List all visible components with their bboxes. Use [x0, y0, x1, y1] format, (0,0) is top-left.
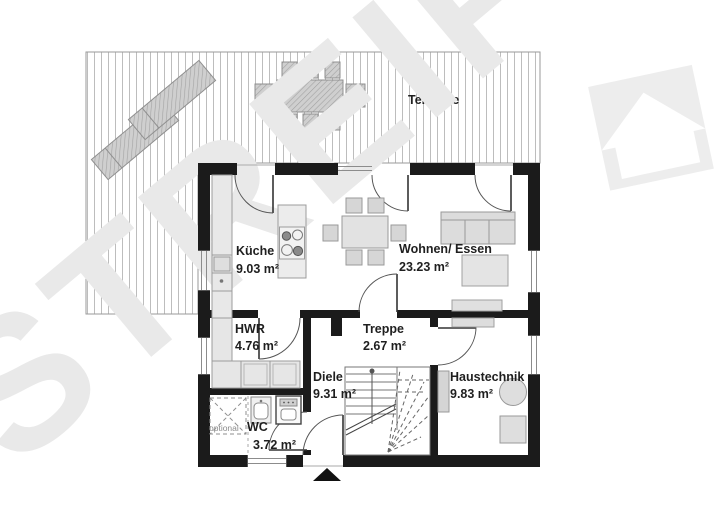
dining-chair — [346, 250, 362, 265]
dining-chair — [391, 225, 406, 241]
outer-wall-top — [410, 163, 475, 175]
room-label-treppe: Treppe — [363, 322, 404, 336]
outer-wall-right — [528, 293, 540, 335]
haustechnik-wall-unit — [438, 371, 449, 412]
sofa — [441, 212, 515, 244]
dining-chair — [368, 198, 384, 213]
outer-wall-bottom — [287, 455, 303, 467]
haustechnik-sideboard — [452, 318, 494, 327]
area-label-haustechnik: 9.83 m² — [450, 387, 493, 401]
cooktop — [280, 227, 305, 259]
cooktop-burner — [293, 246, 302, 255]
hwr-counter — [212, 318, 232, 361]
outer-wall-left — [198, 163, 210, 250]
area-label-wohnen: 23.23 m² — [399, 260, 449, 274]
wc-toilet — [276, 396, 301, 424]
floorplan-svg: Terrasse STREIF — [0, 0, 720, 530]
optional-label: optional — [209, 423, 239, 433]
lowboard — [452, 300, 502, 311]
dining-chair — [346, 198, 362, 213]
coffee-table — [462, 255, 508, 286]
hwr-counter — [212, 361, 300, 388]
area-label-diele: 9.31 m² — [313, 387, 356, 401]
outer-wall-bottom — [343, 455, 540, 467]
streif-logo-icon — [588, 65, 714, 191]
room-label-diele: Diele — [313, 370, 343, 384]
area-label-treppe: 2.67 m² — [363, 339, 406, 353]
outer-wall-right — [528, 375, 540, 467]
room-label-hwr: HWR — [235, 322, 265, 336]
room-label-wc: WC — [247, 420, 268, 434]
kitchen-sink — [214, 257, 230, 271]
room-label-wohnen: Wohnen/ Essen — [399, 242, 492, 256]
dining-table — [342, 216, 388, 248]
dining-chair — [368, 250, 384, 265]
cooktop-burner — [282, 232, 290, 240]
room-label-haustechnik: Haustechnik — [450, 370, 524, 384]
sink-drain — [220, 279, 224, 283]
area-label-wc: 3.72 m² — [253, 438, 296, 452]
haustechnik-unit — [500, 416, 526, 443]
area-label-hwr: 4.76 m² — [235, 339, 278, 353]
outer-wall-top — [275, 163, 338, 175]
area-label-kueche: 9.03 m² — [236, 262, 279, 276]
outer-wall-right — [528, 163, 540, 250]
dining-chair — [323, 225, 338, 241]
outer-wall-bottom — [198, 455, 247, 467]
outer-wall-left — [198, 291, 210, 337]
room-label-kueche: Küche — [236, 244, 274, 258]
